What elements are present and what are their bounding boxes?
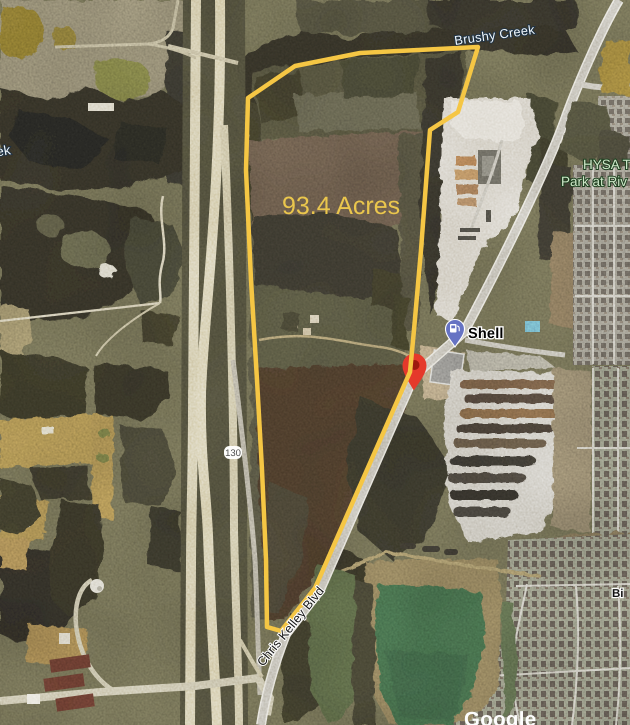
svg-text:Bi: Bi [612, 588, 624, 600]
svg-text:Google: Google [464, 708, 536, 725]
svg-text:Park at Riv: Park at Riv [561, 174, 627, 189]
svg-text:Shell: Shell [468, 326, 504, 342]
svg-text:130: 130 [225, 448, 241, 459]
svg-text:93.4 Acres: 93.4 Acres [282, 192, 400, 220]
svg-text:HYSA T: HYSA T [583, 157, 630, 172]
